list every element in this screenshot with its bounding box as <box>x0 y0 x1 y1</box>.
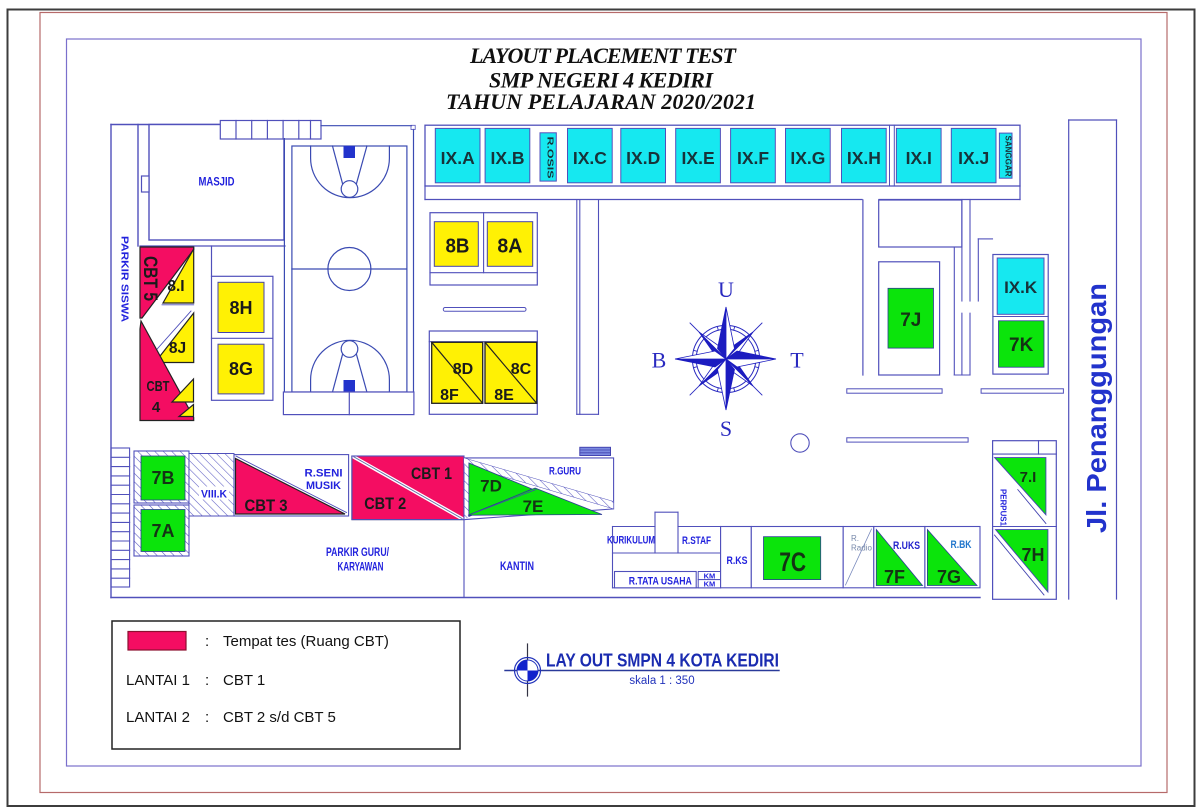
svg-text:IX.G: IX.G <box>790 148 825 168</box>
svg-text:R.GURU: R.GURU <box>549 466 581 478</box>
svg-text:8F: 8F <box>440 387 459 404</box>
svg-text:CBT 5: CBT 5 <box>139 256 160 301</box>
svg-text:IX.J: IX.J <box>958 148 989 168</box>
svg-text:R.SENI: R.SENI <box>305 468 343 480</box>
svg-text:R.TATA USAHA: R.TATA USAHA <box>629 576 692 588</box>
svg-text:8A: 8A <box>497 235 522 258</box>
svg-text:8.I: 8.I <box>167 278 184 295</box>
svg-text:R.: R. <box>851 534 859 543</box>
svg-text:R.KS: R.KS <box>727 555 748 567</box>
svg-text:7G: 7G <box>937 567 961 587</box>
svg-text:7J: 7J <box>900 310 921 331</box>
svg-text:7F: 7F <box>884 567 905 587</box>
svg-text:IX.A: IX.A <box>441 148 475 168</box>
svg-text:7K: 7K <box>1009 335 1034 356</box>
svg-text::: : <box>205 709 209 726</box>
svg-text:MASJID: MASJID <box>199 177 235 189</box>
svg-text:4: 4 <box>152 399 161 416</box>
svg-text:KM: KM <box>704 580 716 589</box>
svg-text:7C: 7C <box>779 547 806 577</box>
svg-text:CBT 1: CBT 1 <box>411 464 452 483</box>
svg-text:TAHUN PELAJARAN 2020/2021: TAHUN PELAJARAN 2020/2021 <box>446 89 756 114</box>
svg-text:T: T <box>790 348 804 373</box>
svg-text:IX.F: IX.F <box>737 148 769 168</box>
svg-text:KARYAWAN: KARYAWAN <box>338 560 384 574</box>
svg-text::: : <box>205 633 209 650</box>
svg-text:LANTAI 1: LANTAI 1 <box>126 672 190 689</box>
svg-text:CBT: CBT <box>147 378 170 395</box>
svg-text:IX.B: IX.B <box>490 148 524 168</box>
svg-text:LAY OUT SMPN 4 KOTA KEDIRI: LAY OUT SMPN 4 KOTA KEDIRI <box>546 651 779 671</box>
svg-text:IX.I: IX.I <box>906 148 932 168</box>
svg-text:LAYOUT PLACEMENT TEST: LAYOUT PLACEMENT TEST <box>469 43 738 68</box>
svg-text:7E: 7E <box>523 497 544 516</box>
svg-text:IX.D: IX.D <box>626 148 660 168</box>
svg-text:8G: 8G <box>229 359 253 379</box>
svg-text:7B: 7B <box>151 468 174 488</box>
svg-text:VIII.K: VIII.K <box>201 489 227 501</box>
svg-text:PARKIR SISWA: PARKIR SISWA <box>119 236 131 322</box>
svg-text:skala 1 : 350: skala 1 : 350 <box>629 675 694 687</box>
svg-text::: : <box>205 672 209 689</box>
svg-text:8D: 8D <box>453 361 473 378</box>
svg-text:Jl. Penanggungan: Jl. Penanggungan <box>1081 283 1112 533</box>
svg-text:7H: 7H <box>1021 545 1044 565</box>
svg-text:SANGGAR: SANGGAR <box>1003 136 1012 177</box>
svg-text:7D: 7D <box>480 477 502 496</box>
svg-text:LANTAI 2: LANTAI 2 <box>126 709 190 726</box>
svg-text:IX.K: IX.K <box>1004 278 1038 297</box>
svg-text:U: U <box>718 277 734 302</box>
svg-text:R.OSIS: R.OSIS <box>546 137 556 179</box>
svg-text:CBT 3: CBT 3 <box>245 496 288 515</box>
svg-text:IX.C: IX.C <box>573 148 607 168</box>
svg-text:Radio: Radio <box>851 544 872 553</box>
svg-text:IX.E: IX.E <box>682 148 715 168</box>
svg-text:KANTIN: KANTIN <box>500 559 534 573</box>
svg-text:R.BK: R.BK <box>951 539 972 551</box>
svg-text:8H: 8H <box>229 298 252 318</box>
svg-text:CBT 1: CBT 1 <box>223 672 265 689</box>
svg-text:MUSIK: MUSIK <box>306 480 341 492</box>
svg-text:Tempat tes (Ruang CBT): Tempat tes (Ruang CBT) <box>223 633 389 650</box>
svg-text:KURIKULUM: KURIKULUM <box>607 535 655 547</box>
svg-text:CBT 2: CBT 2 <box>364 494 406 513</box>
svg-text:R.UKS: R.UKS <box>893 540 920 552</box>
svg-text:8B: 8B <box>446 235 470 258</box>
svg-text:PARKIR GURU/: PARKIR GURU/ <box>326 545 389 559</box>
svg-text:R.STAF: R.STAF <box>682 535 711 547</box>
svg-text:7A: 7A <box>151 521 174 541</box>
svg-text:CBT 2 s/d CBT 5: CBT 2 s/d CBT 5 <box>223 709 336 726</box>
svg-text:B: B <box>652 348 667 373</box>
svg-text:S: S <box>720 416 732 441</box>
svg-text:8C: 8C <box>511 361 532 378</box>
svg-text:8J: 8J <box>169 340 186 357</box>
svg-text:PERPUS1: PERPUS1 <box>999 489 1009 526</box>
svg-text:8E: 8E <box>494 387 514 404</box>
svg-text:7.I: 7.I <box>1020 469 1037 486</box>
svg-text:IX.H: IX.H <box>847 148 881 168</box>
